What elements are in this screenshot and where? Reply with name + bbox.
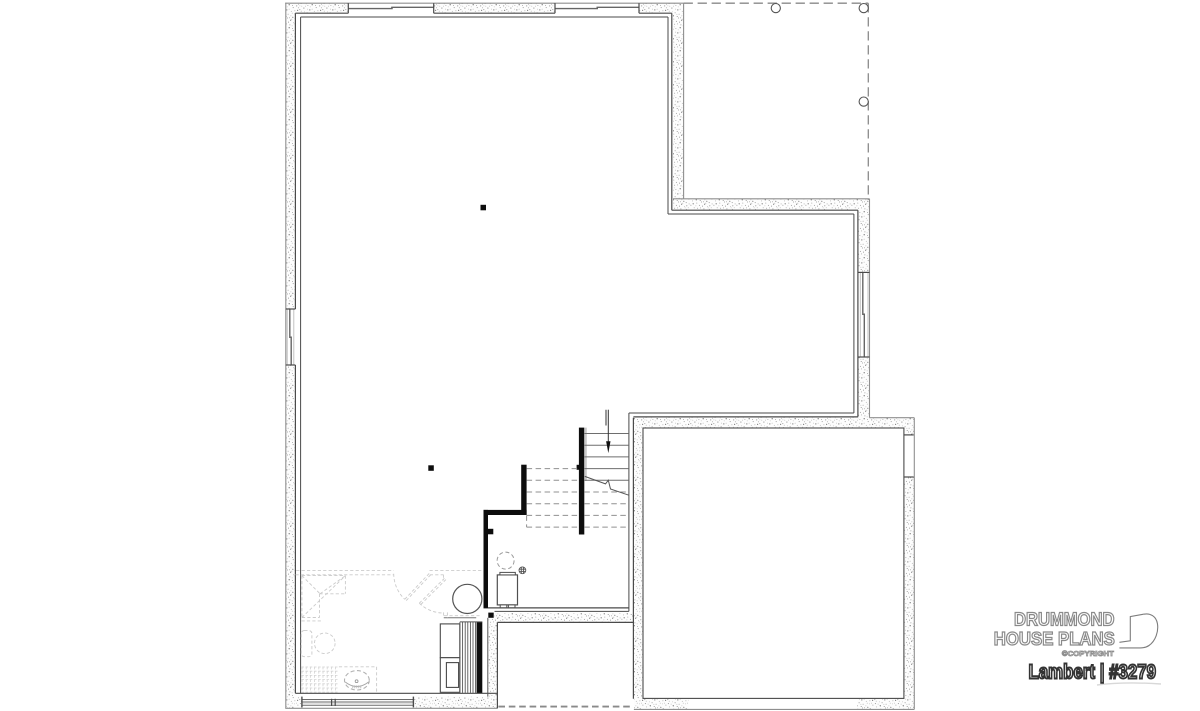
svg-text:©COPYRIGHT: ©COPYRIGHT [1062, 649, 1114, 658]
svg-text:HOUSE PLANS: HOUSE PLANS [994, 629, 1115, 649]
svg-text:Lambert | #3279: Lambert | #3279 [1029, 660, 1157, 683]
svg-text:DRUMMOND: DRUMMOND [1014, 610, 1115, 630]
